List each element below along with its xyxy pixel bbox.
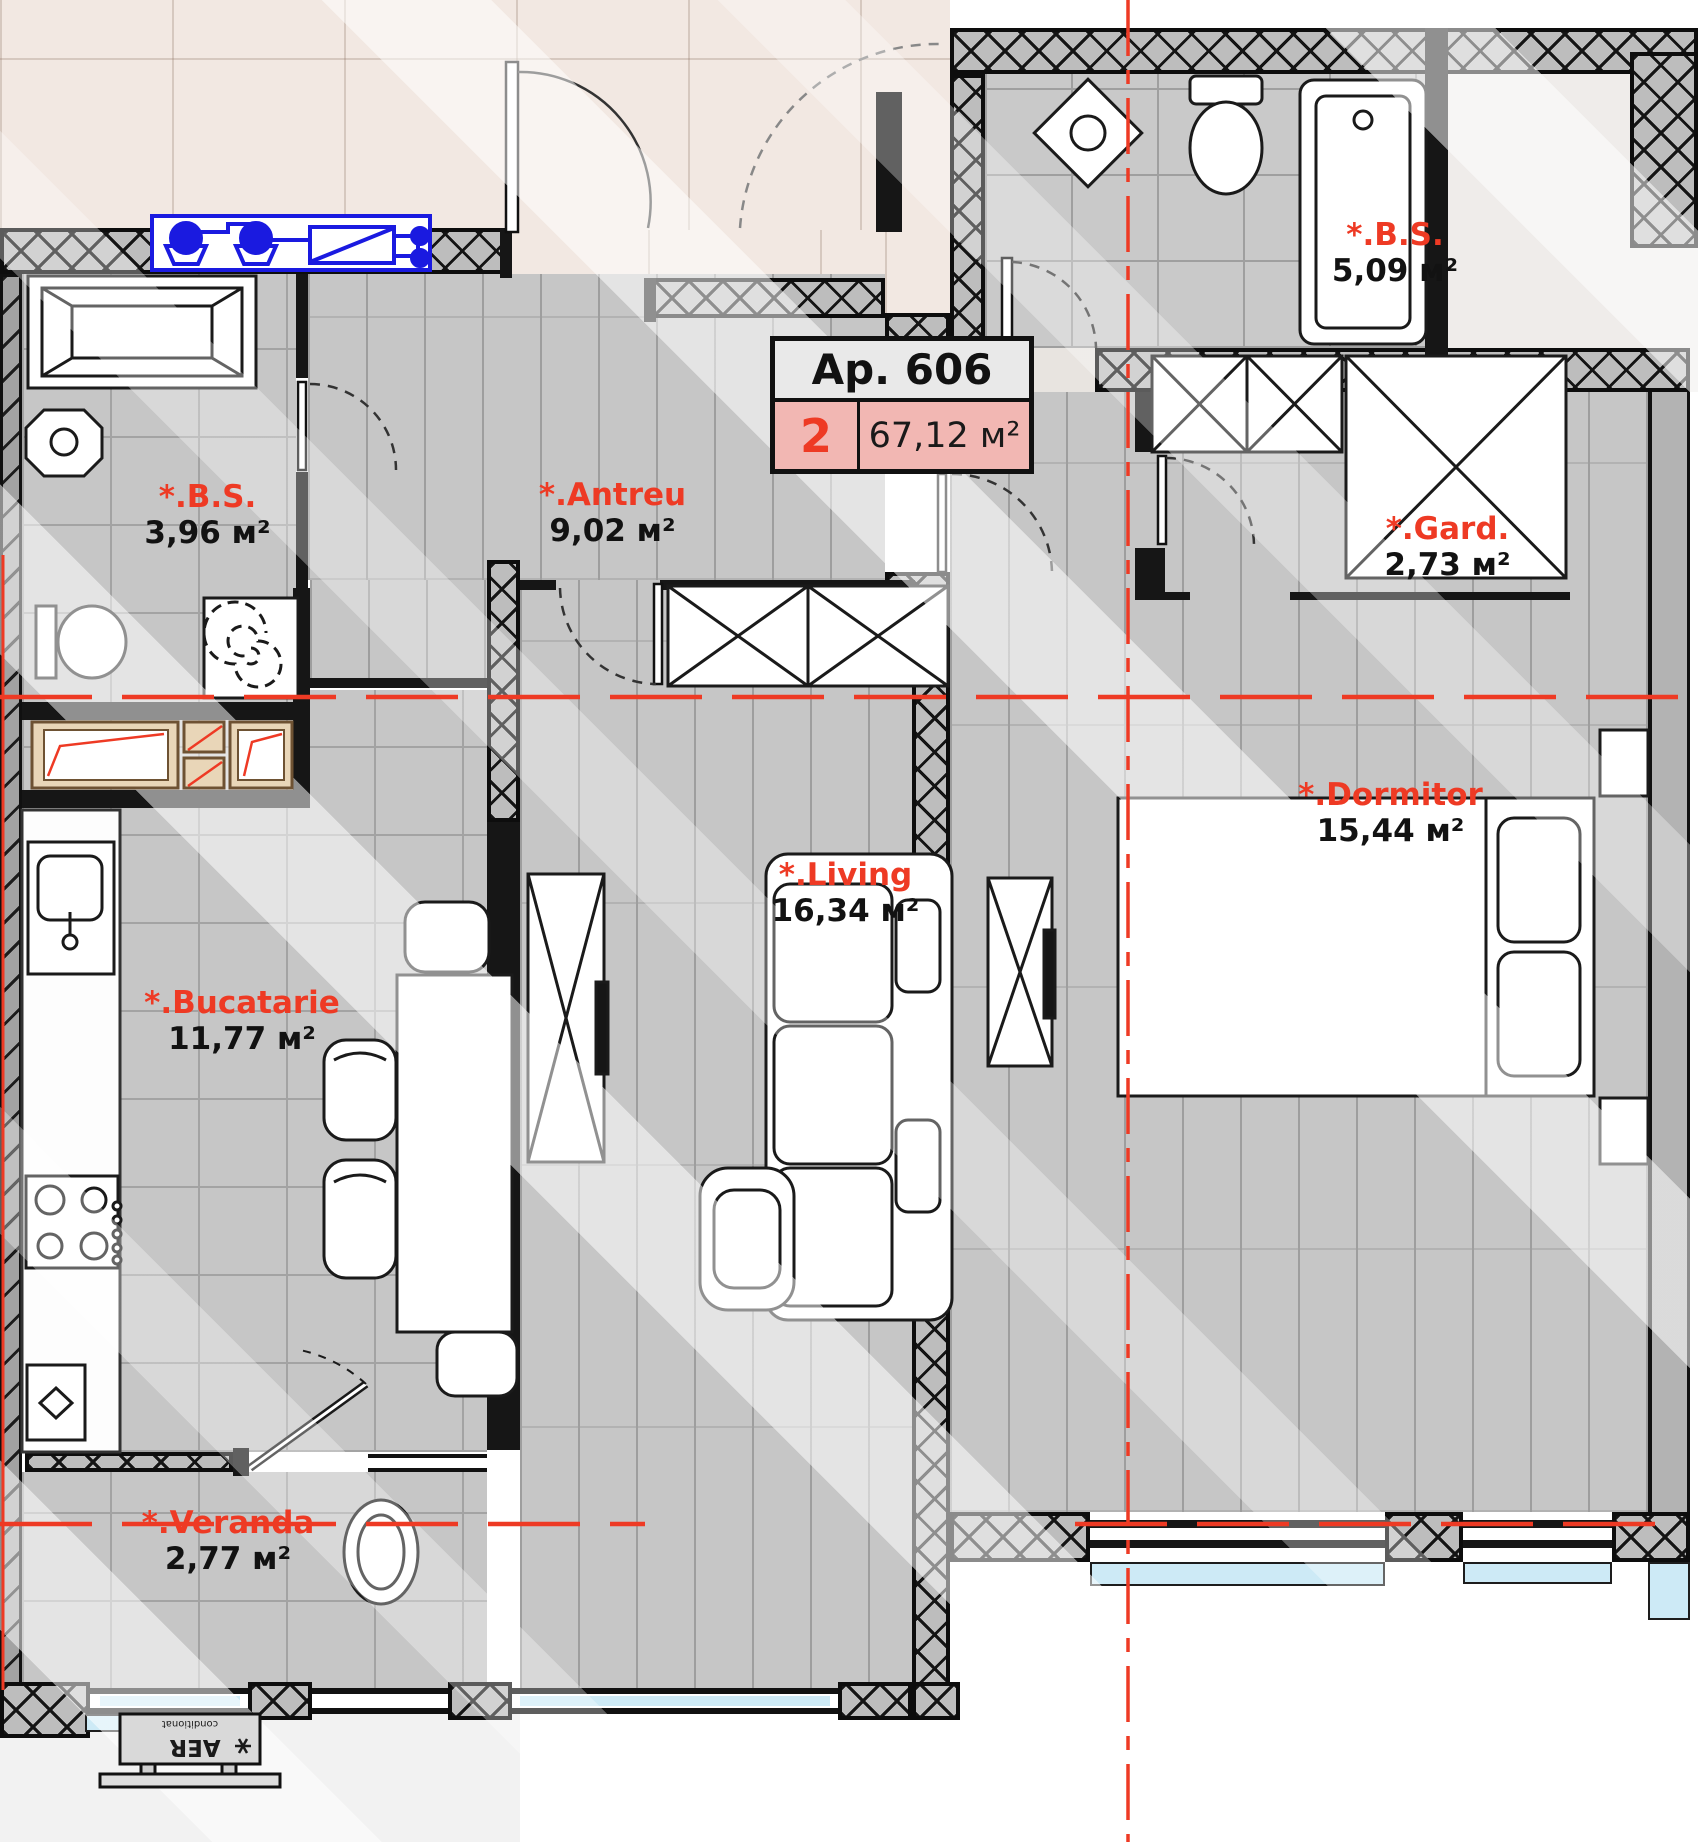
vent-shafts	[32, 722, 292, 788]
ac-label-big: AER	[169, 1734, 221, 1760]
apartment-title-box: Ap. 606 2 67,12 м²	[770, 336, 1034, 474]
section-lines	[0, 0, 1698, 1842]
total-area-value: 67,12 м²	[860, 402, 1029, 469]
annotation-layer: AER conditionat	[0, 0, 1698, 1842]
floor-plan: AER conditionat Ap. 606 2 67,12 м² *.B.S…	[0, 0, 1698, 1842]
apartment-number: Ap. 606	[775, 341, 1029, 402]
ac-label-small: conditionat	[162, 1718, 218, 1729]
legend-blue	[152, 216, 430, 270]
apartment-summary-row: 2 67,12 м²	[775, 402, 1029, 469]
rooms-count-badge: 2	[775, 402, 860, 469]
